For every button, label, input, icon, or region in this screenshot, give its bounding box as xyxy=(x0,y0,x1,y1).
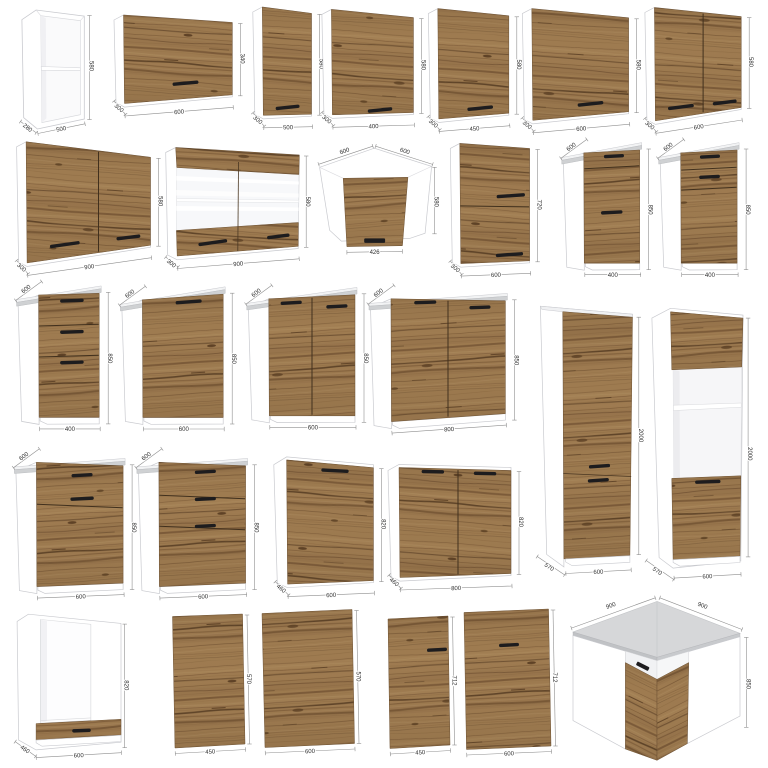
svg-text:2000: 2000 xyxy=(637,429,643,443)
svg-text:800: 800 xyxy=(451,586,462,592)
svg-text:600: 600 xyxy=(702,574,713,581)
svg-text:600: 600 xyxy=(198,594,209,600)
svg-text:850: 850 xyxy=(230,354,236,365)
svg-text:2000: 2000 xyxy=(746,447,752,461)
svg-text:850: 850 xyxy=(744,205,750,216)
svg-text:580: 580 xyxy=(157,196,163,207)
svg-text:600: 600 xyxy=(76,594,87,600)
svg-text:400: 400 xyxy=(608,273,619,279)
svg-text:580: 580 xyxy=(304,197,310,208)
svg-text:580: 580 xyxy=(433,197,439,208)
svg-text:850: 850 xyxy=(512,355,518,366)
svg-text:580: 580 xyxy=(419,60,425,71)
svg-text:400: 400 xyxy=(368,124,379,130)
svg-text:580: 580 xyxy=(515,59,521,70)
svg-text:400: 400 xyxy=(705,273,716,279)
svg-text:600: 600 xyxy=(576,126,587,133)
svg-text:820: 820 xyxy=(517,517,523,528)
svg-text:720: 720 xyxy=(536,200,542,211)
svg-text:800: 800 xyxy=(444,427,455,434)
svg-text:580: 580 xyxy=(635,60,641,71)
svg-text:850: 850 xyxy=(362,353,368,364)
svg-text:600: 600 xyxy=(74,753,85,760)
svg-text:600: 600 xyxy=(179,427,190,433)
svg-text:600: 600 xyxy=(326,593,337,599)
svg-text:820: 820 xyxy=(379,519,385,530)
svg-text:426: 426 xyxy=(370,250,381,256)
svg-text:850: 850 xyxy=(130,522,136,533)
svg-text:500: 500 xyxy=(283,125,294,131)
svg-text:600: 600 xyxy=(174,109,185,116)
svg-text:600: 600 xyxy=(305,749,316,755)
svg-text:600: 600 xyxy=(491,273,502,279)
svg-text:340: 340 xyxy=(238,54,244,65)
svg-text:820: 820 xyxy=(123,680,129,691)
svg-text:450: 450 xyxy=(205,749,216,756)
svg-text:450: 450 xyxy=(415,750,426,757)
svg-text:600: 600 xyxy=(504,751,515,757)
svg-text:712: 712 xyxy=(551,672,557,683)
svg-text:570: 570 xyxy=(245,674,251,685)
svg-text:570: 570 xyxy=(355,671,361,682)
svg-text:600: 600 xyxy=(593,570,604,577)
svg-text:900: 900 xyxy=(233,261,244,268)
svg-text:580: 580 xyxy=(88,61,94,72)
svg-text:850: 850 xyxy=(744,679,750,690)
svg-text:580: 580 xyxy=(747,57,753,68)
svg-text:712: 712 xyxy=(451,675,457,686)
svg-text:600: 600 xyxy=(308,425,319,431)
svg-text:850: 850 xyxy=(253,522,259,533)
svg-text:850: 850 xyxy=(647,205,653,216)
svg-text:400: 400 xyxy=(65,427,76,433)
svg-text:450: 450 xyxy=(469,126,480,133)
svg-text:850: 850 xyxy=(106,353,112,364)
